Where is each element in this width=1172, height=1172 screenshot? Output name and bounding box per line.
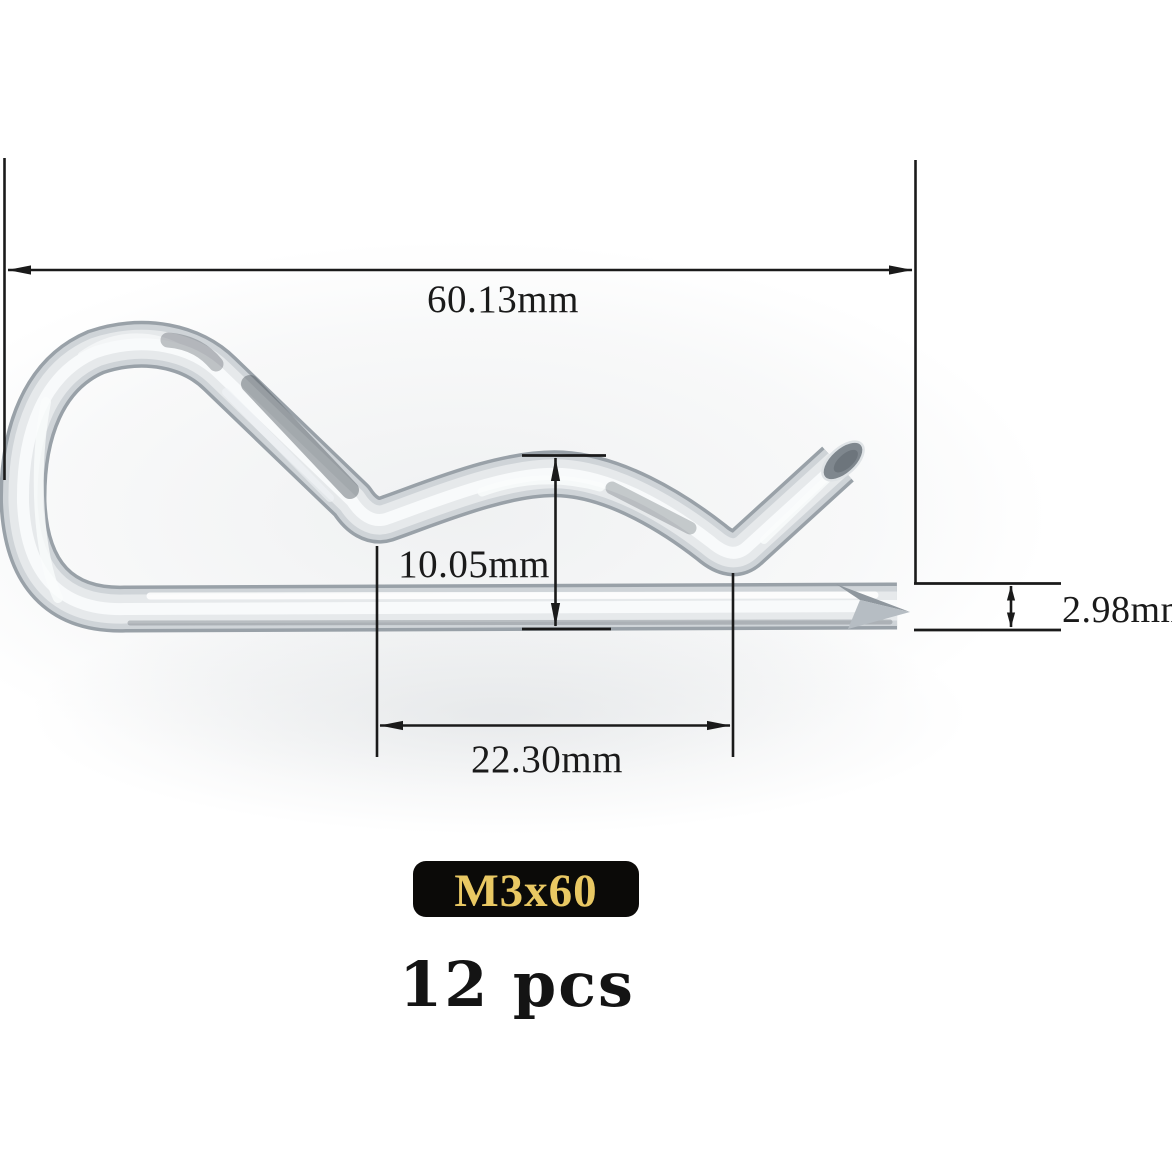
dimension-label-inner-span: 22.30mm [471, 738, 623, 781]
leg-highlight [150, 595, 875, 596]
dimension-label-overall-length: 60.13mm [427, 278, 579, 321]
leg-shadow-line [130, 622, 890, 623]
dimension-label-bend-height: 10.05mm [398, 543, 550, 586]
size-badge-label: M3x60 [454, 865, 597, 917]
size-badge: M3x60 [413, 861, 639, 917]
diagram-svg: 60.13mm 10.05mm 2.98mm 22.30mm M3x60 12 … [0, 0, 1172, 1172]
product-image: 60.13mm 10.05mm 2.98mm 22.30mm M3x60 12 … [0, 0, 1172, 1172]
dimension-label-wire-diameter: 2.98mm [1062, 589, 1172, 631]
quantity-text: 12 pcs [399, 948, 635, 1021]
